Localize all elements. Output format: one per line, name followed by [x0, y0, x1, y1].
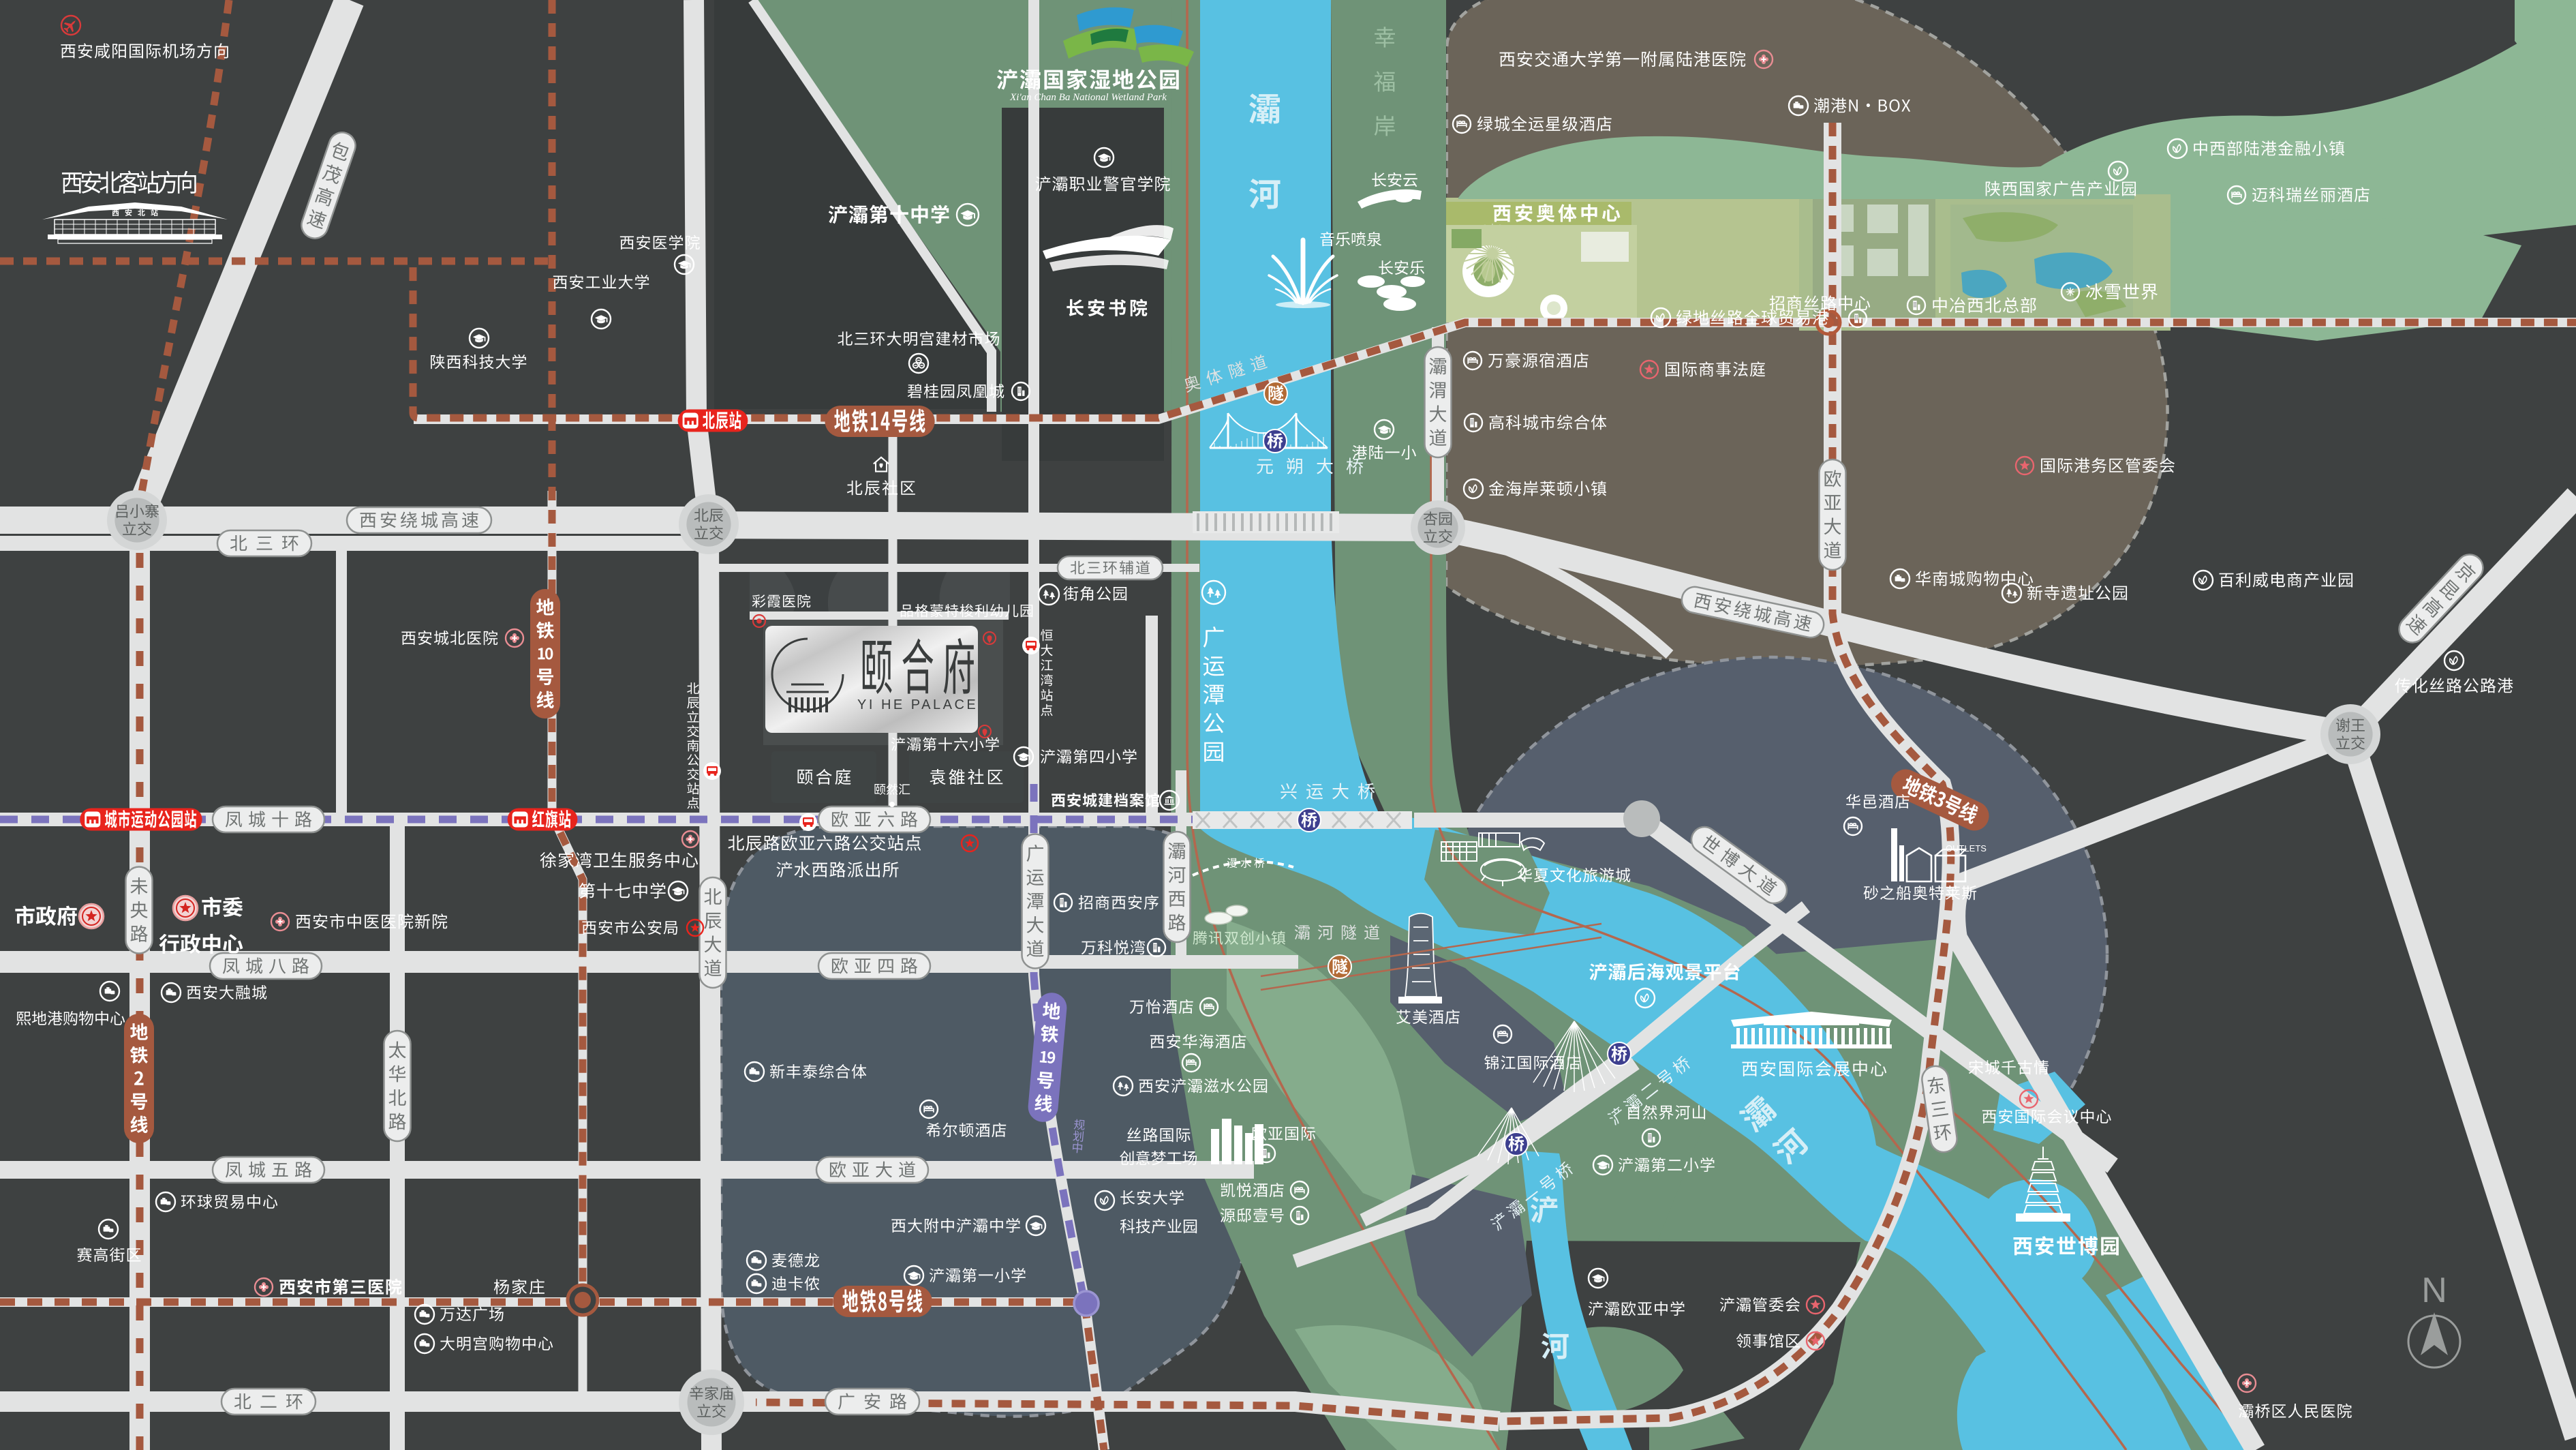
svg-text:Xi'an Chan Ba National Wetland: Xi'an Chan Ba National Wetland Park [1009, 92, 1167, 103]
svg-text:OUTLETS: OUTLETS [1946, 843, 1987, 854]
svg-text:YI HE PALACE: YI HE PALACE [857, 697, 978, 712]
svg-text:N: N [2421, 1271, 2447, 1310]
